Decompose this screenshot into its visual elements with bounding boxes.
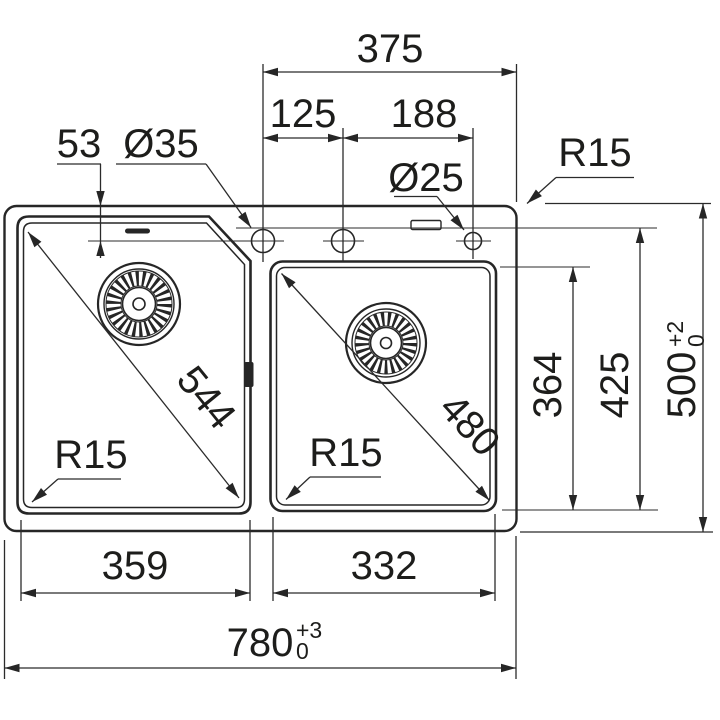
dim-overall-width: 780 +3 0 bbox=[5, 617, 517, 672]
dim-500-label: 500 bbox=[660, 352, 704, 419]
arrowhead-375-right bbox=[502, 68, 517, 76]
dim-right-bowl-depth: 364 bbox=[526, 267, 577, 510]
dim-375-label: 375 bbox=[357, 27, 424, 71]
right-drain-strainer bbox=[346, 303, 426, 383]
arrowhead-544-top bbox=[28, 232, 41, 247]
dim-125-label: 125 bbox=[270, 92, 337, 136]
arrowhead-53-top bbox=[96, 191, 104, 206]
arrowhead-780-left bbox=[5, 664, 20, 672]
left-drain-strainer bbox=[98, 263, 180, 345]
dim-364-label: 364 bbox=[526, 352, 570, 419]
dim-left-bowl-depth: 425 bbox=[593, 228, 644, 510]
divider-overflow-slot bbox=[244, 362, 254, 387]
dim-500-tol-lower: 0 bbox=[683, 334, 709, 347]
arrowhead-188-left bbox=[343, 134, 358, 142]
arrowhead-425-bottom bbox=[636, 495, 644, 510]
arrowhead-o35 bbox=[238, 212, 251, 228]
sink-technical-drawing: 375 125 188 53 Ø35 Ø25 R15 bbox=[0, 0, 720, 720]
arrowhead-332-left bbox=[273, 589, 288, 597]
left-drain-cap bbox=[123, 288, 156, 321]
arrowhead-53-bottom bbox=[96, 241, 104, 256]
arrowhead-500-bottom bbox=[699, 517, 707, 532]
arrowhead-332-right bbox=[480, 589, 495, 597]
dim-780-label: 780 bbox=[227, 621, 294, 665]
dim-hole-pitches: 125 188 bbox=[263, 92, 473, 142]
arrowhead-500-top bbox=[699, 204, 707, 219]
arrowhead-425-top bbox=[636, 228, 644, 243]
dim-o35-label: Ø35 bbox=[123, 122, 199, 166]
leader-radius-rim: R15 bbox=[527, 131, 634, 204]
arrowhead-375-left bbox=[263, 68, 278, 76]
leader-hole-dia-small: Ø25 bbox=[388, 156, 464, 230]
dim-r15-left-label: R15 bbox=[54, 433, 127, 477]
dim-500-label-group: 500 +2 0 bbox=[660, 321, 709, 419]
dim-53-label: 53 bbox=[57, 122, 102, 166]
dim-overall-depth: 500 +2 0 bbox=[660, 204, 709, 533]
dim-o25-label: Ø25 bbox=[388, 156, 464, 200]
dim-r15-right-label: R15 bbox=[309, 431, 382, 475]
dim-left-bowl-width: 359 bbox=[21, 544, 250, 597]
dim-425-label: 425 bbox=[593, 352, 637, 419]
arrowhead-544-bottom bbox=[226, 483, 239, 498]
dim-r15-rim-label: R15 bbox=[558, 131, 631, 175]
dim-332-label: 332 bbox=[351, 544, 418, 588]
drawing-canvas: 375 125 188 53 Ø35 Ø25 R15 bbox=[0, 0, 720, 720]
leader-radius-left-bowl: R15 bbox=[32, 433, 128, 502]
arrowhead-780-right bbox=[501, 664, 516, 672]
arrowhead-364-top bbox=[569, 267, 577, 282]
dim-deck-offset: 53 bbox=[57, 122, 105, 258]
right-drain-cap bbox=[371, 328, 402, 359]
arrowhead-359-left bbox=[21, 589, 36, 597]
dim-top-width: 375 bbox=[263, 27, 517, 76]
left-bowl-overflow-slot bbox=[125, 229, 150, 234]
dim-544-label: 544 bbox=[168, 358, 244, 438]
arrowhead-364-bottom bbox=[569, 495, 577, 510]
arrowhead-359-right bbox=[235, 589, 250, 597]
sink-outer-rim bbox=[5, 206, 517, 531]
leader-hole-dia-large: Ø35 bbox=[116, 122, 251, 228]
dim-right-bowl-width: 332 bbox=[273, 544, 495, 597]
dim-188-label: 188 bbox=[391, 92, 458, 136]
arrowhead-188-right bbox=[458, 134, 473, 142]
dim-359-label: 359 bbox=[102, 544, 169, 588]
leader-radius-right-bowl: R15 bbox=[286, 431, 383, 500]
dim-780-tol-lower: 0 bbox=[296, 638, 309, 664]
